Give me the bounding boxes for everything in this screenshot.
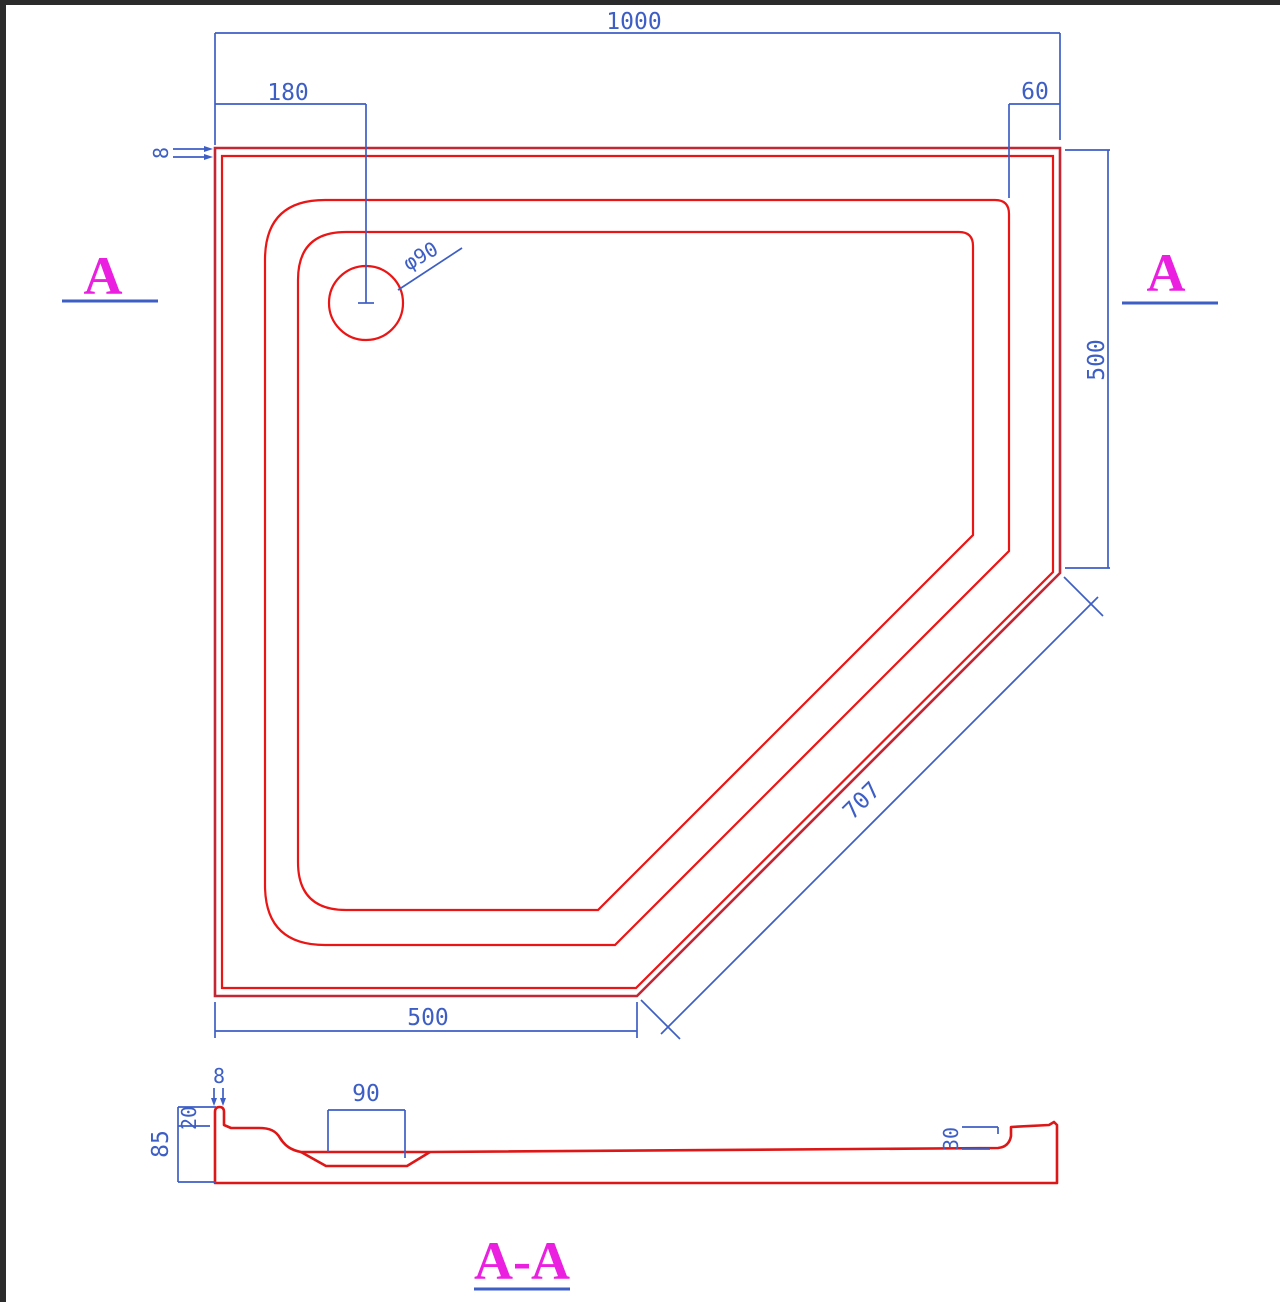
section-dim-20-label: 20 bbox=[177, 1106, 201, 1130]
section-dim-drain-width: 90 bbox=[328, 1081, 405, 1158]
frame-top-edge bbox=[0, 0, 1280, 5]
dim-8-arrow-bottom bbox=[204, 154, 213, 160]
section-profile-outline bbox=[215, 1107, 1057, 1183]
dim-bottom-side: 500 bbox=[215, 1002, 637, 1038]
frame-left-edge bbox=[0, 0, 6, 1302]
dim-right-side: 500 bbox=[1065, 150, 1110, 568]
dim-180-label: 180 bbox=[267, 80, 309, 106]
dim-500-bottom-label: 500 bbox=[407, 1005, 449, 1031]
section-dim-rim-width: 8 bbox=[211, 1064, 226, 1106]
dim-chamfer: 707 bbox=[641, 577, 1103, 1039]
dim-500-right-label: 500 bbox=[1084, 339, 1110, 381]
cad-drawing-shower-tray: 1000 180 60 8 500 bbox=[0, 0, 1280, 1302]
section-dim-8-label: 8 bbox=[213, 1064, 225, 1088]
dim-707-ext-bottom bbox=[641, 1000, 680, 1039]
section-marker-right: A bbox=[1122, 243, 1218, 303]
section-dim-30-label: 30 bbox=[939, 1127, 963, 1151]
drain-callout: φ90 bbox=[398, 237, 462, 290]
section-drain-recess bbox=[301, 1152, 430, 1166]
dim-707-label: 707 bbox=[838, 777, 886, 825]
dim-rim-thickness: 8 bbox=[149, 146, 213, 160]
section-marker-left-label: A bbox=[84, 246, 123, 306]
section-dim-85-label: 85 bbox=[148, 1130, 174, 1158]
dim-8-label: 8 bbox=[149, 147, 173, 159]
section-dim-90-label: 90 bbox=[352, 1081, 380, 1107]
section-marker-right-label: A bbox=[1147, 243, 1186, 303]
drain-diameter-label: φ90 bbox=[399, 237, 442, 276]
dim-overall-width: 1000 bbox=[215, 9, 1060, 145]
section-marker-left: A bbox=[62, 246, 158, 306]
dim-60-label: 60 bbox=[1021, 79, 1049, 105]
section-title: A-A bbox=[474, 1231, 570, 1291]
section-title-label: A-A bbox=[474, 1231, 570, 1291]
dim-707-ext-top bbox=[1064, 577, 1103, 616]
plan-rim-inner-outline bbox=[222, 156, 1053, 988]
drawing-canvas: 1000 180 60 8 500 bbox=[0, 0, 1280, 1302]
plan-view: 1000 180 60 8 500 bbox=[62, 9, 1218, 1039]
dim-1000-label: 1000 bbox=[606, 9, 661, 35]
section-dim-8-arrow-right bbox=[220, 1098, 226, 1106]
dim-707-line bbox=[661, 597, 1098, 1034]
section-dim-8-arrow-left bbox=[211, 1098, 217, 1106]
plan-rim-base-outline bbox=[265, 200, 1009, 945]
dim-8-arrow-top bbox=[204, 146, 213, 152]
section-view: 8 20 85 90 30 bbox=[148, 1064, 1057, 1291]
section-dim-heights: 20 85 bbox=[148, 1106, 216, 1182]
